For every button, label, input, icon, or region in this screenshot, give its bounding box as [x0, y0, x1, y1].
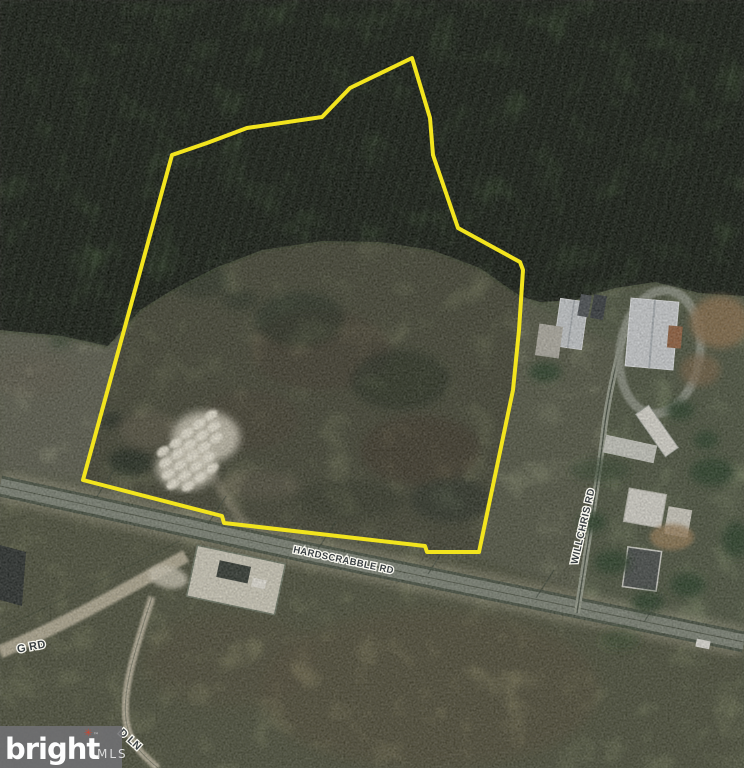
watermark-trademark: ™: [93, 732, 99, 739]
aerial-photo: HARDSCRABBLE RD WILLCHRIS RD G RD D LN b…: [0, 0, 744, 768]
watermark-suffix: MLS: [97, 747, 128, 761]
grain-light: [0, 0, 744, 768]
sparkle-icon: ✳: [84, 728, 92, 739]
watermark: bright ✳ ™ MLS: [0, 726, 128, 768]
aerial-scene: HARDSCRABBLE RD WILLCHRIS RD G RD D LN b…: [0, 0, 744, 768]
